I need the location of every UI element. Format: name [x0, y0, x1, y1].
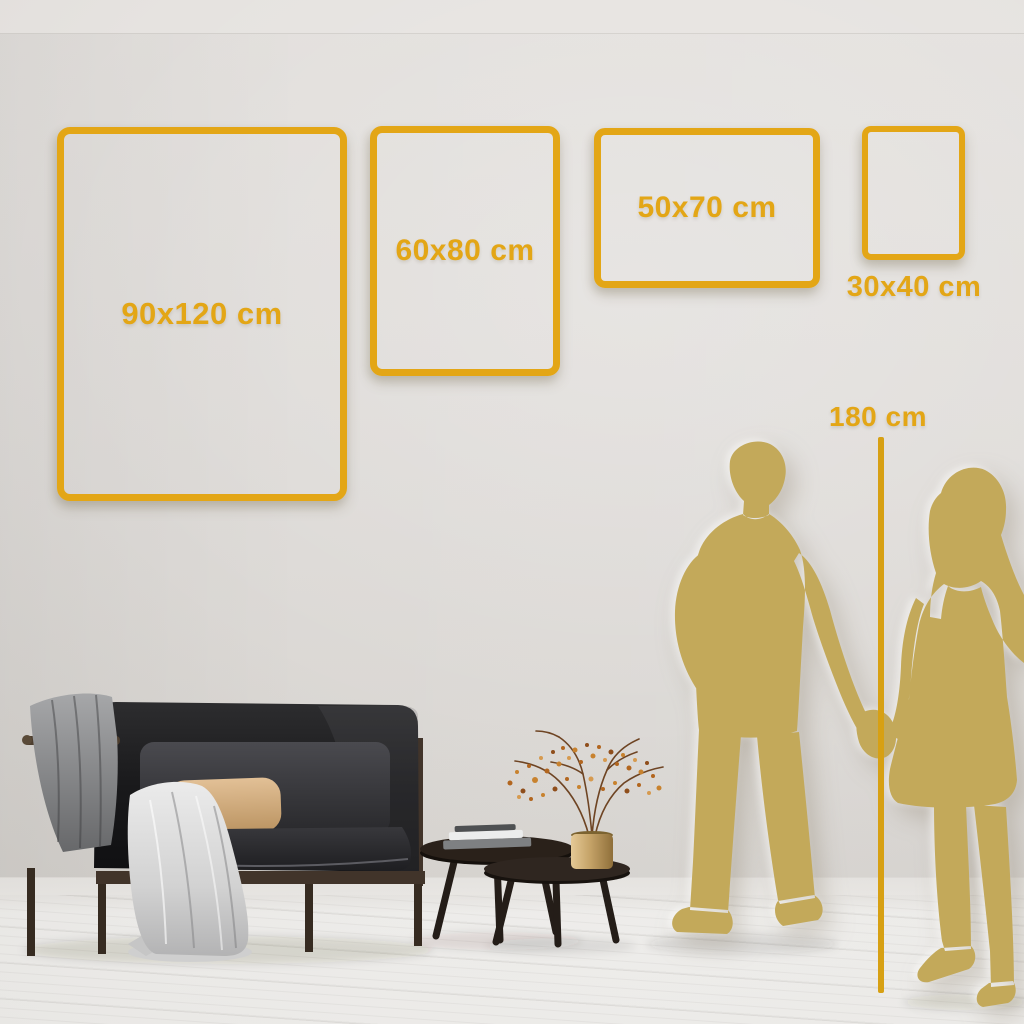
size-frame-50x70: 50x70 cm — [594, 128, 820, 288]
size-frame-60x80: 60x80 cm — [370, 126, 560, 376]
size-label-60x80: 60x80 cm — [395, 234, 534, 268]
height-marker-label: 180 cm — [816, 401, 940, 433]
size-frame-90x120: 90x120 cm — [57, 127, 347, 501]
size-label-30x40: 30x40 cm — [832, 271, 996, 304]
size-label-50x70: 50x70 cm — [637, 191, 776, 225]
size-label-90x120: 90x120 cm — [121, 296, 282, 332]
height-marker-line — [878, 437, 884, 993]
size-frame-30x40 — [862, 126, 965, 260]
size-guide-scene: 90x120 cm 60x80 cm 50x70 cm 30x40 cm 180… — [0, 0, 1024, 1024]
